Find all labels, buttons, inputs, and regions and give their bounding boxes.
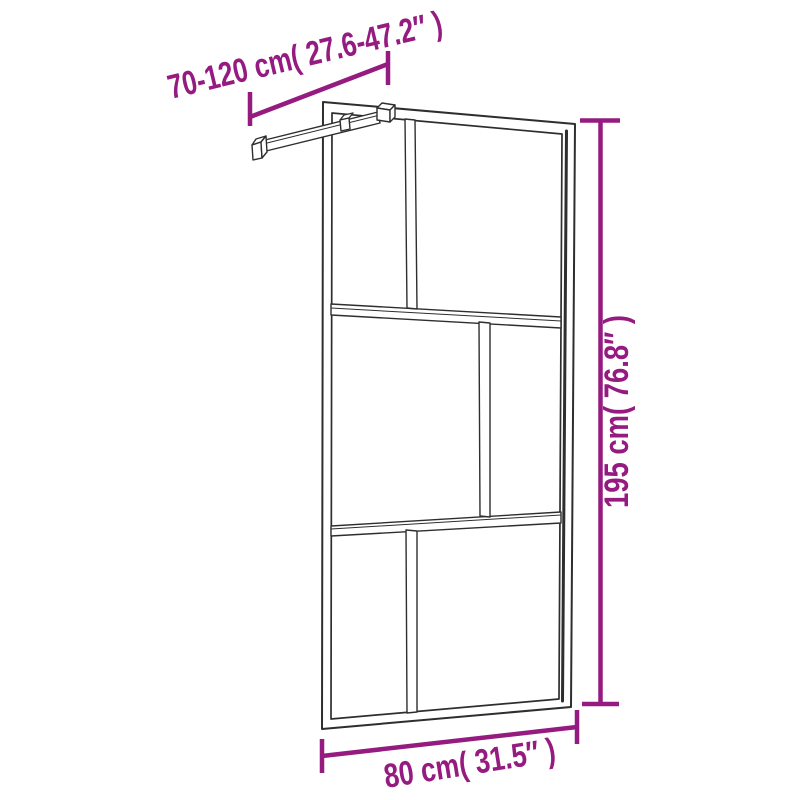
diagram-page: 70-120 cm( 27.6-47.2″ ) 195 cm( 76.8″ ) … bbox=[0, 0, 800, 800]
rail-clamp-front bbox=[340, 118, 350, 131]
dimension-top: 70-120 cm( 27.6-47.2″ ) bbox=[164, 4, 446, 126]
mullion-top bbox=[405, 119, 417, 309]
frame-inner-opening bbox=[331, 113, 562, 719]
dimension-right: 195 cm( 76.8″ ) bbox=[580, 121, 636, 705]
dimension-top-label: 70-120 cm( 27.6-47.2″ ) bbox=[164, 4, 446, 107]
shower-wall-line-drawing bbox=[252, 102, 575, 729]
top-bracket-front bbox=[377, 108, 390, 122]
dimension-right-label: 195 cm( 76.8″ ) bbox=[598, 315, 636, 508]
mullion-bottom bbox=[406, 530, 417, 713]
dimension-diagram-canvas: 70-120 cm( 27.6-47.2″ ) 195 cm( 76.8″ ) … bbox=[0, 0, 800, 800]
mullion-middle bbox=[479, 322, 490, 517]
